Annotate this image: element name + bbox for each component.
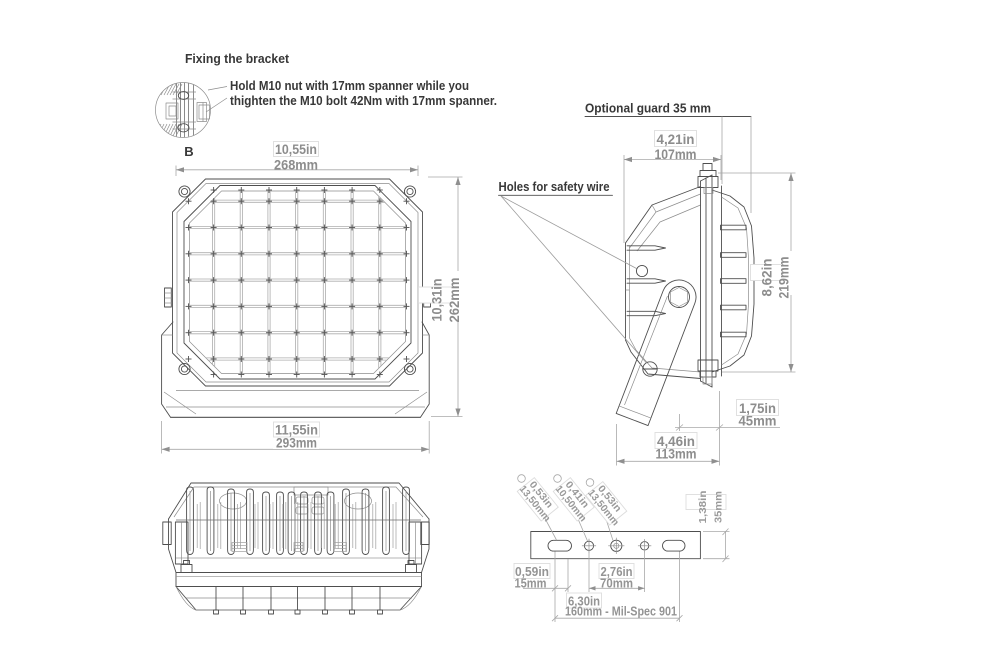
svg-text:4,21in: 4,21in xyxy=(657,132,695,147)
svg-text:45mm: 45mm xyxy=(739,414,777,429)
svg-text:160mm - Mil-Spec 901: 160mm - Mil-Spec 901 xyxy=(565,605,677,619)
svg-text:262mm: 262mm xyxy=(447,278,462,323)
svg-text:Fixing the bracket: Fixing the bracket xyxy=(185,51,290,66)
svg-text:1,38in: 1,38in xyxy=(698,491,709,524)
svg-text:10,31in: 10,31in xyxy=(430,279,445,322)
svg-text:268mm: 268mm xyxy=(274,158,318,173)
svg-text:Optional guard 35 mm: Optional guard 35 mm xyxy=(585,101,711,116)
svg-text:219mm: 219mm xyxy=(777,257,792,299)
svg-text:70mm: 70mm xyxy=(600,577,633,591)
svg-text:15mm: 15mm xyxy=(515,577,547,591)
svg-text:10,55in: 10,55in xyxy=(275,142,317,157)
svg-text:35mm: 35mm xyxy=(714,491,725,523)
svg-text:8,62in: 8,62in xyxy=(760,259,775,297)
svg-text:thighten the M10 bolt 42Nm wit: thighten the M10 bolt 42Nm with 17mm spa… xyxy=(230,93,497,108)
svg-text:113mm: 113mm xyxy=(656,447,697,462)
svg-text:Holes for safety wire: Holes for safety wire xyxy=(499,179,610,194)
svg-text:B: B xyxy=(184,144,193,159)
svg-text:107mm: 107mm xyxy=(655,147,697,162)
svg-text:Hold M10 nut with 17mm spanner: Hold M10 nut with 17mm spanner while you xyxy=(230,78,469,93)
svg-text:293mm: 293mm xyxy=(276,436,317,451)
